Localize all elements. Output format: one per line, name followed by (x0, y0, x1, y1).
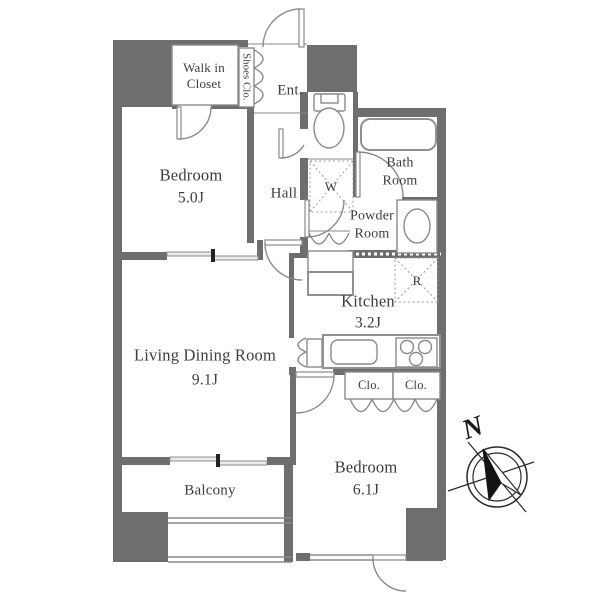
bedroom2-exterior-door (373, 555, 406, 591)
compass (448, 442, 534, 512)
stove-icon (396, 338, 437, 367)
closet-bifold-doors (350, 399, 437, 412)
hall-label: Hall (271, 185, 298, 204)
walk-in-closet-label: Walk in Closet (169, 60, 239, 93)
bedroom1-sliding-door (167, 249, 258, 262)
washer-label: W (325, 179, 337, 195)
bedroom2-label: Bedroom (335, 458, 398, 479)
bath-label: Bath Room (372, 155, 428, 190)
living-size: 9.1J (192, 370, 218, 389)
shoes-closet-folding-door (254, 50, 263, 104)
hall-door (265, 240, 302, 280)
powder-label: Powder Room (336, 208, 408, 243)
bedroom2-door (296, 372, 334, 413)
kitchen-end-panel (307, 339, 322, 367)
balcony-sliding-window (170, 454, 267, 467)
bedroom1-size: 5.0J (178, 188, 204, 207)
closet2-label: Clo. (405, 378, 427, 394)
living-label: Living Dining Room (134, 346, 276, 367)
kitchen-sink-icon (331, 340, 377, 364)
floor-plan: Walk in Closet Shoes Clo. Ent. Bedroom 5… (0, 0, 600, 600)
entrance-label: Ent. (277, 82, 302, 101)
shoes-closet-label: Shoes Clo. (239, 53, 252, 101)
kitchen-label: Kitchen (341, 292, 395, 313)
kitchen-size: 3.2J (355, 313, 381, 332)
kitchen-counter (323, 335, 440, 368)
refrigerator-label: R (413, 273, 422, 289)
kitchen-cabinet-upper (308, 251, 353, 272)
kitchen-bifold-door (298, 338, 306, 367)
balcony-label: Balcony (184, 482, 235, 501)
toilet-door (279, 129, 304, 158)
walk-in-closet-door (177, 107, 211, 139)
closet1-label: Clo. (358, 378, 380, 394)
bathtub-icon (361, 119, 436, 150)
entrance-door (263, 9, 304, 47)
toilet-icon (314, 94, 345, 148)
bedroom2-size: 6.1J (353, 480, 379, 499)
bedroom1-label: Bedroom (160, 166, 223, 187)
